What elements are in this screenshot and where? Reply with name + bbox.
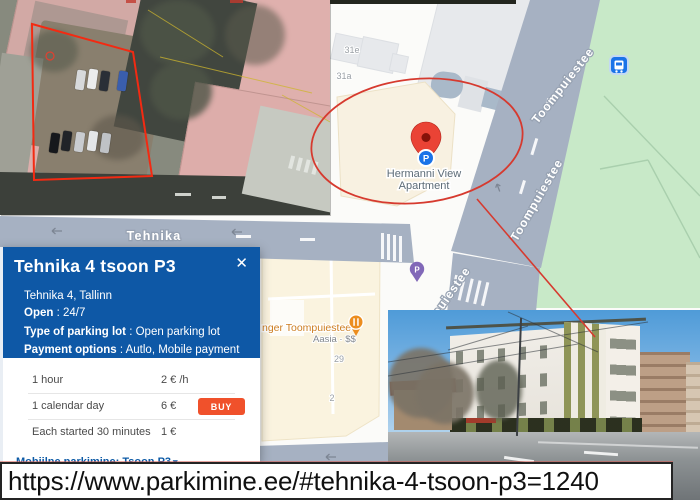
card-title: Tehnika 4 tsoon P3 [14, 256, 248, 277]
svg-text:Hermanni View: Hermanni View [387, 168, 461, 180]
svg-text:31e: 31e [344, 45, 359, 55]
svg-text:P: P [414, 266, 420, 275]
card-body: 1 hour 2 € /h 1 calendar day 6 € BUY Eac… [3, 358, 260, 473]
street-label-tehnika: Tehnika [127, 229, 182, 243]
screenshot-root: Tehnika Toompuiestee Toompuiestee Toompu… [0, 0, 700, 500]
svg-text:31a: 31a [336, 71, 351, 81]
price-row-day: 1 calendar day 6 € BUY [32, 394, 235, 419]
satellite-photo-edge [330, 0, 516, 4]
parking-badge-icon[interactable]: P [418, 150, 434, 166]
card-field-open: Open : 24/7 [24, 307, 248, 321]
parking-info-card: Tehnika 4 tsoon P3 ✕ Tehnika 4, Tallinn … [0, 247, 260, 463]
svg-text:P: P [423, 154, 430, 165]
svg-text:29: 29 [334, 354, 344, 364]
restaurant-label: nger Toompuiestee [262, 322, 351, 334]
price-row-hour: 1 hour 2 € /h [32, 368, 235, 393]
buy-button[interactable]: BUY [198, 398, 245, 415]
card-field-type: Type of parking lot : Open parking lot [24, 326, 248, 340]
cadastral-overlay [0, 0, 330, 215]
satellite-photo [0, 0, 330, 215]
svg-text:2: 2 [329, 393, 334, 403]
restaurant-subtitle: Aasia · $$ [313, 334, 356, 345]
close-icon[interactable]: ✕ [235, 254, 248, 272]
svg-text:Apartment: Apartment [399, 180, 450, 192]
card-header: Tehnika 4 tsoon P3 ✕ Tehnika 4, Tallinn … [3, 247, 260, 358]
url-bar[interactable]: https://www.parkimine.ee/#tehnika-4-tsoo… [0, 462, 673, 500]
bus-stop-icon[interactable] [610, 56, 628, 74]
card-field-payment: Payment options : Autlo, Mobile payment [24, 344, 248, 358]
url-text[interactable]: https://www.parkimine.ee/#tehnika-4-tsoo… [8, 466, 599, 497]
price-row-halfhour: Each started 30 minutes 1 € [32, 420, 235, 445]
card-address: Tehnika 4, Tallinn [24, 290, 248, 302]
